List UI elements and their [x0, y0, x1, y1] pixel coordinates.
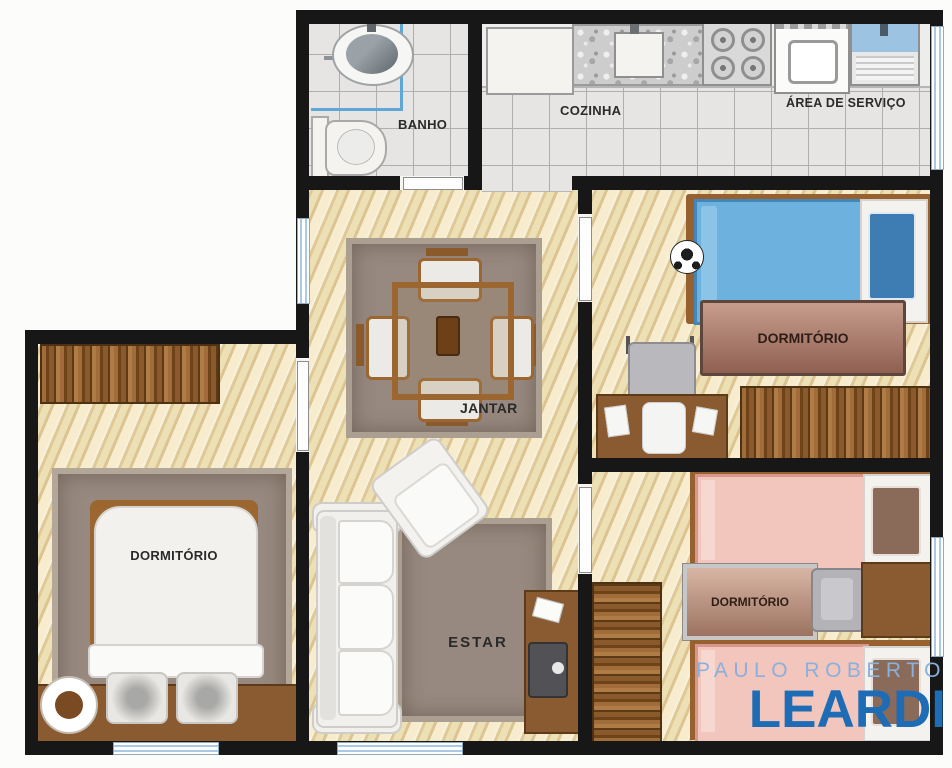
sofa-cushion [338, 650, 394, 716]
logo-line2: LEARDI [600, 683, 946, 736]
chair-back-slat [426, 248, 468, 256]
sofa-cushion [338, 520, 394, 584]
room-label-dormitorio-bottom-right: DORMITÓRIO [711, 595, 789, 609]
washing-machine [774, 16, 850, 94]
paper [692, 406, 718, 435]
room-label-estar: ESTAR [418, 634, 538, 651]
window [931, 537, 944, 657]
table-centerpiece [436, 316, 460, 356]
sofa-back [320, 516, 336, 720]
double-bed [94, 506, 258, 652]
desk-chair [628, 342, 696, 402]
door [579, 217, 592, 301]
burner-icon [741, 28, 765, 52]
desk-chair [811, 568, 865, 632]
room-label-jantar: JANTAR [460, 400, 518, 416]
door [297, 361, 309, 451]
pillow [176, 672, 238, 724]
chair-cushion [821, 578, 853, 620]
stove [702, 20, 772, 86]
window [931, 26, 944, 170]
sofa-cushion [338, 584, 394, 650]
pillow [871, 486, 921, 556]
soccer-ball-icon [670, 240, 704, 274]
bathroom-sink-basin [346, 34, 398, 74]
pillow [868, 212, 916, 300]
room-label-area-de-servico: ÁREA DE SERVIÇO [786, 96, 906, 110]
burner-icon [741, 56, 765, 80]
burner-icon [711, 56, 735, 80]
wall [592, 458, 930, 472]
laundry-tank [850, 16, 920, 86]
burner-icon [711, 28, 735, 52]
window [337, 742, 463, 755]
tv-detail [552, 662, 564, 674]
wardrobe [740, 386, 934, 462]
wall [25, 330, 38, 755]
desk [596, 394, 728, 460]
tank-ridges [856, 56, 914, 80]
wall [296, 176, 943, 190]
window [297, 218, 310, 304]
washer-door [788, 40, 838, 84]
shower-box-line [311, 108, 403, 111]
room-label-plate: DORMITÓRIO [700, 300, 906, 376]
window [113, 742, 219, 755]
wall [25, 330, 308, 344]
bed-fold [701, 480, 715, 560]
round-side-table-top [55, 691, 83, 719]
door [403, 177, 463, 190]
door [579, 487, 592, 573]
chair-back-slat [356, 324, 364, 366]
room-label-plate: DORMITÓRIO [683, 564, 817, 640]
round-side-table [40, 676, 98, 734]
brand-logo: PAULO ROBERTO LEARDI [600, 660, 946, 736]
paper [604, 405, 630, 438]
chair-seat [642, 402, 686, 454]
fridge [486, 27, 574, 95]
logo-line1: PAULO ROBERTO [600, 660, 946, 681]
pillow [106, 672, 168, 724]
desk [861, 562, 935, 638]
sofa [316, 510, 398, 728]
wall [296, 10, 943, 24]
room-label-banho: BANHO [398, 117, 447, 132]
room-label-dormitorio-top-right: DORMITÓRIO [758, 330, 849, 346]
kitchen-passage [482, 176, 572, 192]
kitchen-sink [614, 32, 664, 78]
room-label-cozinha: COZINHA [560, 103, 621, 118]
floor-plan: DORMITÓRIO DORMITÓRIO [0, 0, 952, 768]
toilet-seat [337, 129, 375, 165]
wall [468, 24, 482, 190]
wardrobe [40, 344, 220, 404]
single-bed-pink [695, 474, 869, 572]
room-label-dormitorio-left: DORMITÓRIO [94, 548, 254, 563]
